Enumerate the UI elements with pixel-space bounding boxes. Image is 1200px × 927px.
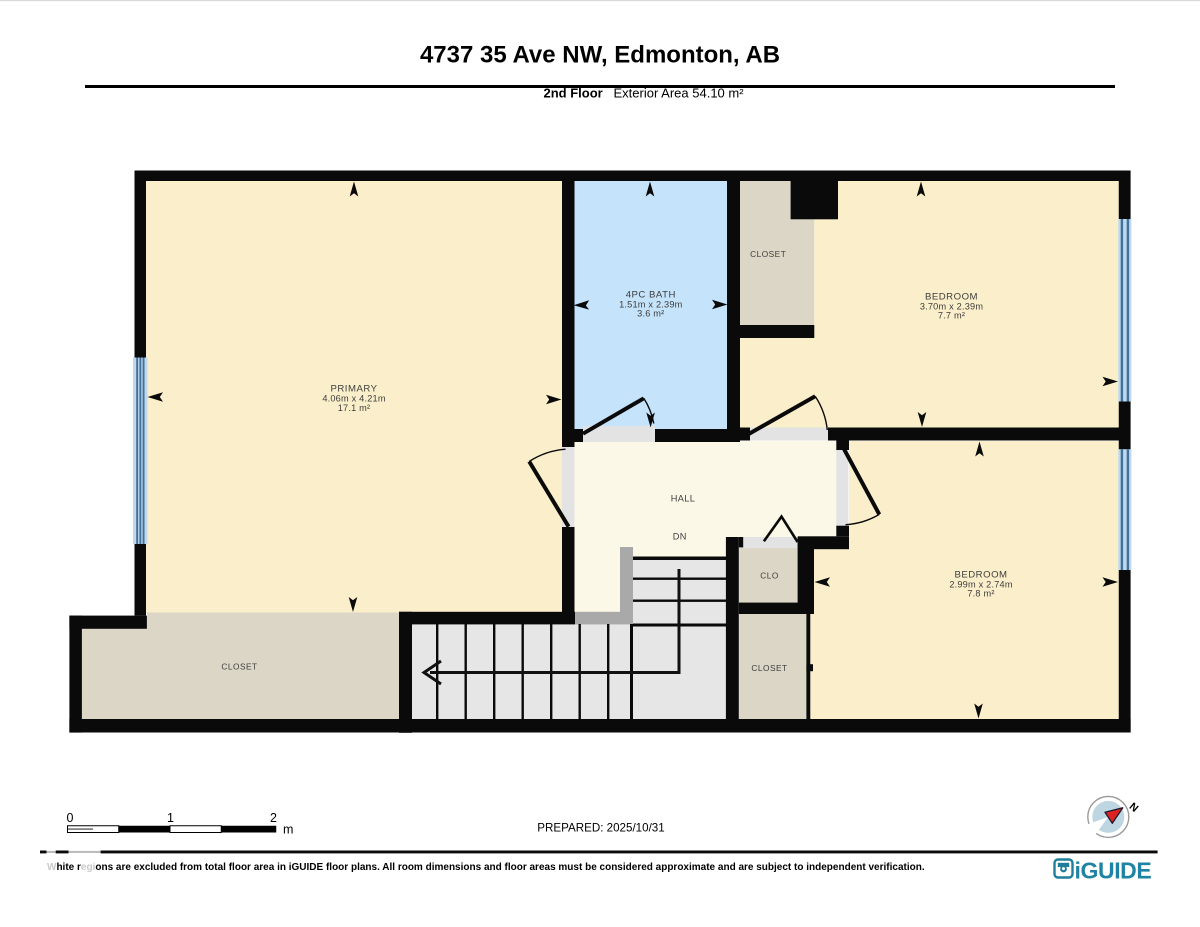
svg-text:0: 0 (67, 811, 74, 825)
svg-text:White regions are excluded fro: White regions are excluded from total fl… (47, 862, 925, 873)
svg-text:4737 35 Ave NW, Edmonton, AB: 4737 35 Ave NW, Edmonton, AB (420, 42, 780, 69)
svg-text:DN: DN (673, 532, 687, 542)
svg-text:2: 2 (270, 811, 277, 825)
svg-text:iGUIDE: iGUIDE (1075, 858, 1152, 884)
svg-text:m: m (283, 823, 293, 837)
svg-text:CLOSET: CLOSET (751, 663, 787, 673)
svg-text:Exterior Area 54.10 m²: Exterior Area 54.10 m² (614, 86, 745, 101)
svg-text:7.7 m²: 7.7 m² (938, 311, 965, 321)
svg-text:CLOSET: CLOSET (750, 249, 786, 259)
svg-text:HALL: HALL (671, 494, 696, 504)
svg-text:2nd Floor: 2nd Floor (544, 86, 603, 101)
svg-text:CLO: CLO (760, 571, 779, 581)
svg-text:PREPARED: 2025/10/31: PREPARED: 2025/10/31 (537, 822, 664, 835)
svg-text:CLOSET: CLOSET (221, 662, 257, 672)
svg-text:7.8 m²: 7.8 m² (967, 589, 994, 599)
svg-text:17.1 m²: 17.1 m² (338, 403, 371, 413)
svg-text:1: 1 (167, 811, 174, 825)
svg-text:3.6 m²: 3.6 m² (637, 309, 664, 319)
